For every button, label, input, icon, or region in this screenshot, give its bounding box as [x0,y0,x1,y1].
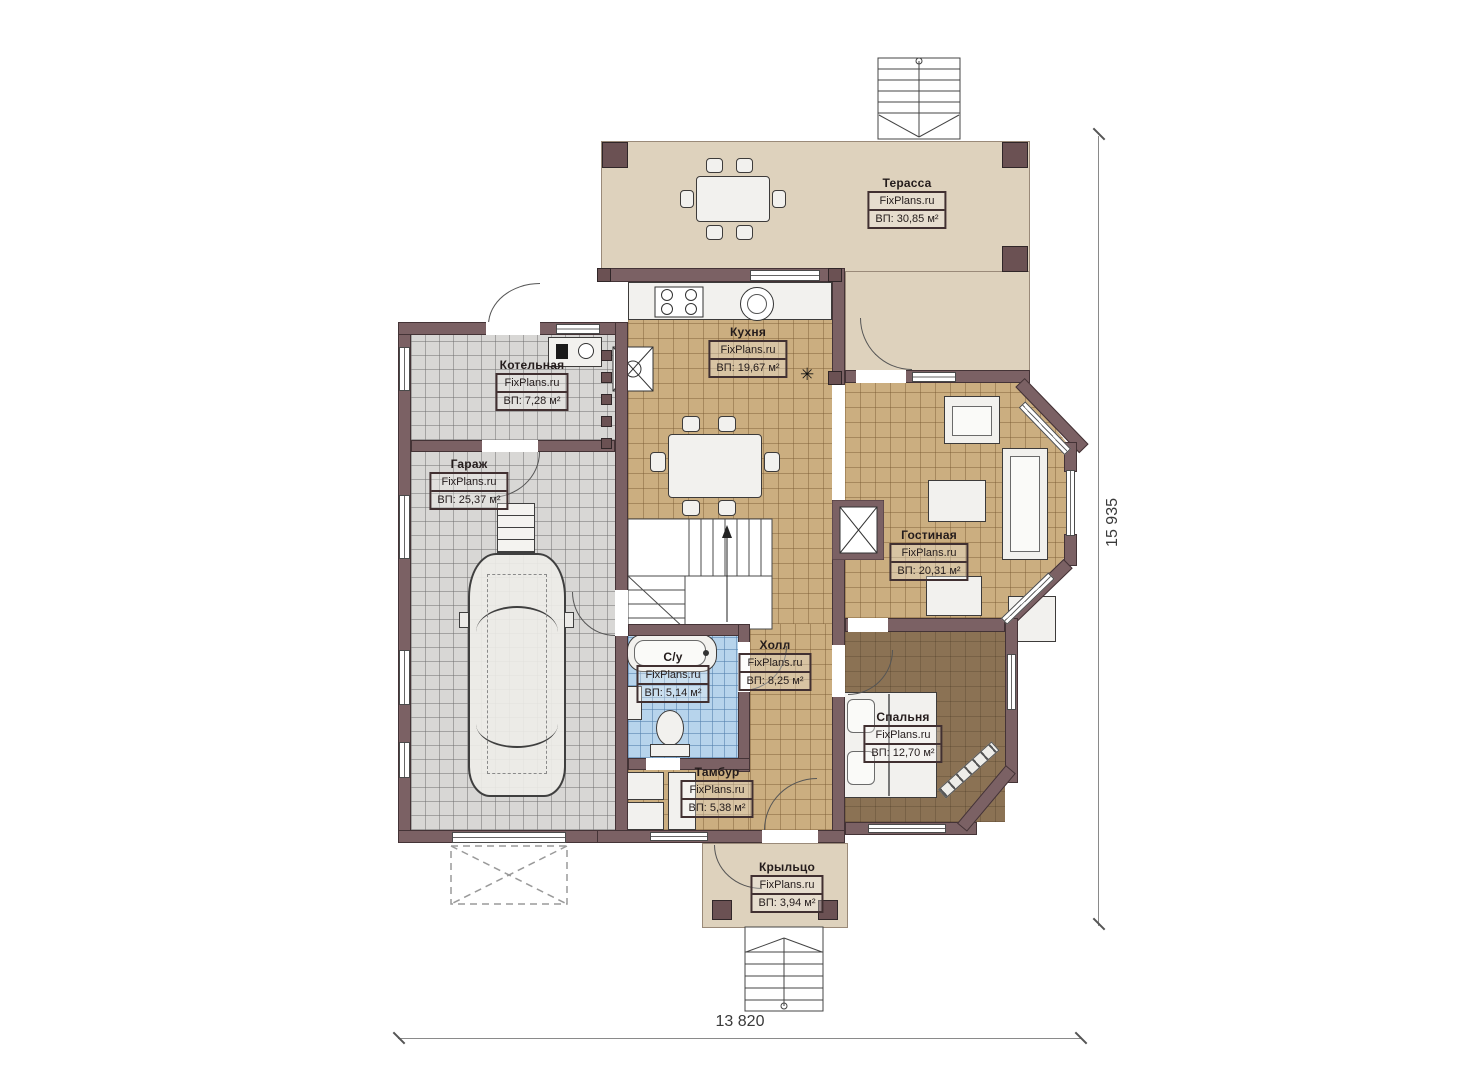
interior-stairs [627,518,773,630]
wall-node [597,268,611,282]
garage-rack [497,503,535,553]
boiler-unit-panel [556,344,568,359]
wall-pilaster [601,394,612,405]
floor-plan: ✳ [0,0,1473,1080]
fireplace [832,500,884,560]
room-name: Кухня [708,325,787,339]
toilet-bowl [656,710,684,746]
room-info-box: FixPlans.ru ВП: 3,94 м² [750,875,823,913]
wall-kitchen-right [832,268,845,385]
terrace-post [1002,142,1028,168]
room-name: Крыльцо [750,860,823,874]
wall-bath-top [628,624,750,636]
room-info-box: FixPlans.ru ВП: 7,28 м² [495,373,568,411]
window-garage [399,495,410,559]
garage-apron [450,845,568,905]
vestibule-closet [626,772,664,800]
door-opening-bedroom [848,618,888,632]
room-label-terrace: Терасса FixPlans.ru ВП: 30,85 м² [867,176,946,229]
dining-chair [682,416,700,432]
terrace-chair [736,158,753,173]
room-name: Тамбур [680,765,753,779]
room-info-box: FixPlans.ru ВП: 8,25 м² [738,653,811,691]
sofa-seat [1010,456,1040,552]
window-boiler [556,324,600,334]
watermark: FixPlans.ru [752,877,821,893]
wall-pilaster [601,416,612,427]
terrace-chair [706,158,723,173]
room-label-boiler: Котельная FixPlans.ru ВП: 7,28 м² [495,358,568,411]
watermark: FixPlans.ru [869,193,944,209]
room-name: Гараж [429,457,508,471]
terrace-floor [601,141,1030,272]
watermark: FixPlans.ru [497,375,566,391]
dimension-tick [1093,918,1106,931]
window-living [912,372,956,382]
front-door-opening [762,830,818,843]
door-opening-boiler-garage [482,440,538,452]
room-name: Терасса [867,176,946,190]
door-opening-bath-vestibule [646,758,680,770]
wall-pilaster [601,350,612,361]
terrace-post [602,142,628,168]
room-label-bathroom: С/у FixPlans.ru ВП: 5,14 м² [636,650,709,703]
watermark: FixPlans.ru [682,782,751,798]
terrace-chair [706,225,723,240]
terrace-chair [736,225,753,240]
room-area: ВП: 3,94 м² [752,893,821,911]
door-opening-hall-bedroom [832,645,845,697]
dimension-line-horizontal [398,1038,1082,1039]
room-info-box: FixPlans.ru ВП: 5,14 м² [636,665,709,703]
room-name: Гостиная [889,528,968,542]
window-vestibule [650,832,708,841]
car-mirror-left [459,612,469,628]
wall-pilaster [601,372,612,383]
door-arc-boiler-entrance [488,283,540,325]
room-area: ВП: 25,37 м² [431,490,506,508]
room-name: Котельная [495,358,568,372]
wall-garage-right [615,322,628,843]
porch-stairs [744,926,824,1012]
tv-stand [926,576,982,616]
dimension-line-vertical [1098,136,1099,926]
room-label-garage: Гараж FixPlans.ru ВП: 25,37 м² [429,457,508,510]
room-label-bedroom: Спальня FixPlans.ru ВП: 12,70 м² [863,710,942,763]
window-kitchen [750,270,820,281]
dining-table [668,434,762,498]
room-info-box: FixPlans.ru ВП: 25,37 м² [429,472,508,510]
room-label-living: Гостиная FixPlans.ru ВП: 20,31 м² [889,528,968,581]
garage-door [452,832,566,843]
room-area: ВП: 20,31 м² [891,561,966,579]
room-info-box: FixPlans.ru ВП: 30,85 м² [867,191,946,229]
window-garage [399,650,410,705]
watermark: FixPlans.ru [891,545,966,561]
room-area: ВП: 8,25 м² [740,671,809,689]
kitchen-sink-basin [747,294,767,314]
room-label-porch: Крыльцо FixPlans.ru ВП: 3,94 м² [750,860,823,913]
car-mirror-right [564,612,574,628]
wall-pilaster [601,438,612,449]
room-label-kitchen: Кухня FixPlans.ru ВП: 19,67 м² [708,325,787,378]
room-area: ВП: 30,85 м² [869,209,944,227]
room-area: ВП: 19,67 м² [710,358,785,376]
coffee-table [928,480,986,522]
watermark: FixPlans.ru [865,727,940,743]
armchair-seat [952,406,992,436]
room-info-box: FixPlans.ru ВП: 20,31 м² [889,543,968,581]
dimension-vertical-value: 15 935 [1104,498,1122,547]
terrace-post [1002,246,1028,272]
stove [654,286,704,318]
window-garage [399,347,410,391]
room-name: С/у [636,650,709,664]
dining-chair [764,452,780,472]
room-area: ВП: 5,38 м² [682,798,751,816]
window-bedroom-right [1007,654,1016,710]
toilet-tank [650,744,690,757]
porch-post [712,900,732,920]
room-area: ВП: 7,28 м² [497,391,566,409]
terrace-chair [772,190,786,208]
room-label-vestibule: Тамбур FixPlans.ru ВП: 5,38 м² [680,765,753,818]
window-bay-right [1066,470,1075,536]
door-opening-boiler [486,322,540,335]
flue-icon: ✳ [800,366,814,383]
wall-node [828,268,842,282]
watermark: FixPlans.ru [431,474,506,490]
watermark: FixPlans.ru [638,667,707,683]
dining-chair [718,416,736,432]
room-name: Спальня [863,710,942,724]
vestibule-closet [626,802,664,830]
terrace-stairs [877,57,961,140]
dining-chair [650,452,666,472]
dining-chair [718,500,736,516]
boiler-unit-dial [578,343,594,359]
door-opening-garage-hall [615,590,628,636]
watermark: FixPlans.ru [740,655,809,671]
dimension-tick [1093,128,1106,141]
room-name: Холл [738,638,811,652]
room-info-box: FixPlans.ru ВП: 12,70 м² [863,725,942,763]
window-bedroom-bottom [868,824,946,833]
terrace-table [696,176,770,222]
room-area: ВП: 5,14 м² [638,683,707,701]
room-label-hall: Холл FixPlans.ru ВП: 8,25 м² [738,638,811,691]
door-opening-terrace-living [856,370,906,383]
window-garage [399,742,410,778]
terrace-chair [680,190,694,208]
wall-node [828,371,842,385]
room-info-box: FixPlans.ru ВП: 5,38 м² [680,780,753,818]
car-clearance-outline [487,574,547,774]
room-info-box: FixPlans.ru ВП: 19,67 м² [708,340,787,378]
dining-chair [682,500,700,516]
room-area: ВП: 12,70 м² [865,743,940,761]
watermark: FixPlans.ru [710,342,785,358]
dimension-horizontal-value: 13 820 [716,1013,765,1031]
